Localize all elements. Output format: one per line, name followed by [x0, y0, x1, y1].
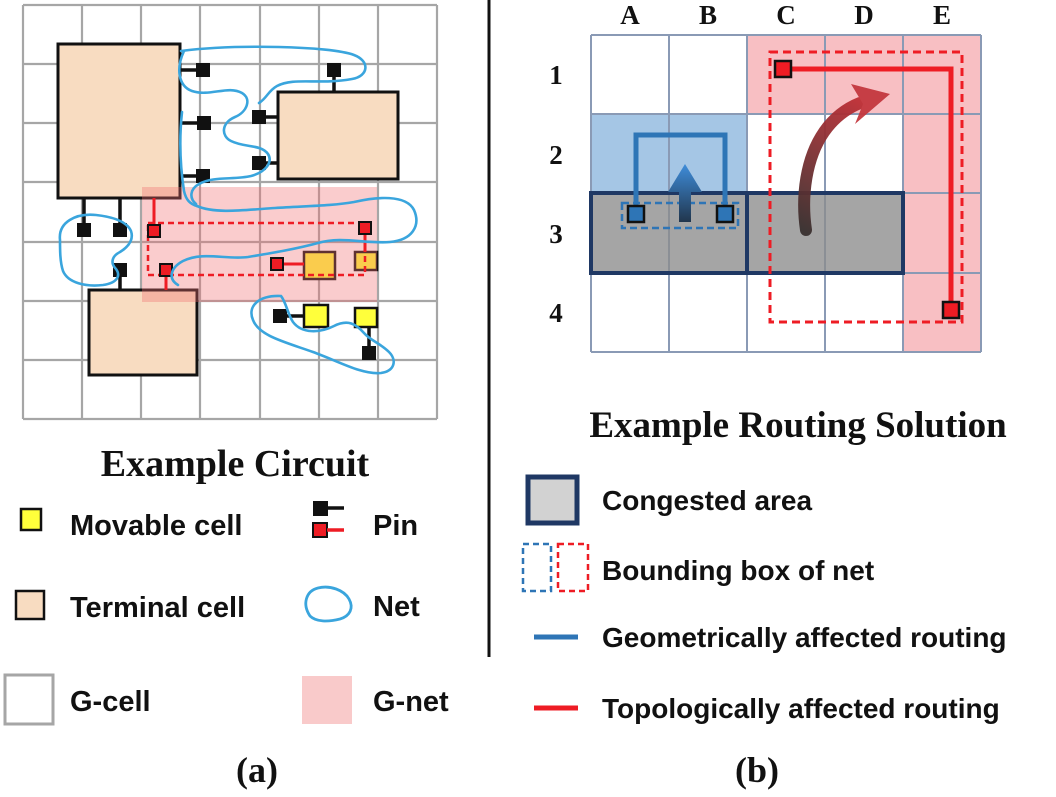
pin-red-routing [775, 61, 791, 77]
g-cell-swatch [5, 675, 53, 724]
congested-area-swatch [528, 477, 577, 523]
terminal-cell-swatch [16, 591, 44, 619]
shift-up-arrow-shaft [679, 190, 691, 222]
column-label-e: E [933, 0, 951, 30]
terminal-cell-top-right [278, 92, 398, 179]
pin-icon [313, 501, 344, 537]
pin-black [273, 309, 287, 323]
left-panel: Example Circuit (a) Movable cell Pin Ter… [5, 5, 449, 790]
pin-black [252, 110, 266, 124]
pin-red [271, 258, 283, 270]
pin-red-routing [943, 302, 959, 318]
right-legend: Congested area Bounding box of net Geome… [523, 477, 1007, 724]
legend-label-g-cell: G-cell [70, 686, 151, 718]
movable-cell [304, 305, 328, 327]
column-label-c: C [776, 0, 796, 30]
legend-label-topological: Topologically affected routing [602, 693, 1000, 724]
bounding-box-blue-swatch [523, 544, 551, 591]
row-label-1: 1 [549, 60, 563, 90]
pin-red [148, 225, 160, 237]
row-label-3: 3 [549, 219, 563, 249]
figure-canvas: Example Circuit (a) Movable cell Pin Ter… [0, 0, 1056, 797]
pin-blue [628, 206, 644, 222]
legend-label-geometric: Geometrically affected routing [602, 622, 1007, 653]
legend-label-terminal-cell: Terminal cell [70, 592, 245, 624]
figure-page: Example Circuit (a) Movable cell Pin Ter… [0, 0, 1056, 797]
pin-black-swatch [313, 501, 328, 516]
movable-cell [355, 308, 377, 327]
column-label-b: B [699, 0, 717, 30]
right-panel-caption: (b) [735, 750, 779, 790]
movable-cell-swatch [21, 509, 41, 530]
legend-label-net: Net [373, 591, 420, 623]
right-panel-title: Example Routing Solution [589, 405, 1007, 446]
legend-label-pin: Pin [373, 510, 418, 542]
column-label-d: D [854, 0, 874, 30]
bounding-box-red-swatch [558, 544, 588, 591]
terminal-cell-top-left [58, 44, 180, 198]
pin-red-swatch [313, 523, 327, 537]
row-label-2: 2 [549, 140, 563, 170]
row-label-4: 4 [549, 298, 563, 328]
net-blob-icon [306, 587, 351, 621]
legend-label-bounding-box: Bounding box of net [602, 555, 874, 586]
pin-blue [717, 206, 733, 222]
legend-label-movable-cell: Movable cell [70, 510, 242, 542]
pin-black [362, 346, 376, 360]
terminal-cell-bottom-left [89, 290, 197, 375]
column-label-a: A [620, 0, 640, 30]
pin-red [160, 264, 172, 276]
pin-red [359, 222, 371, 234]
legend-label-congested: Congested area [602, 485, 812, 516]
pin-black [77, 223, 91, 237]
pin-black [113, 263, 127, 277]
left-legend: Movable cell Pin Terminal cell Net G-cel… [5, 501, 449, 724]
pin-black [197, 116, 211, 130]
g-net-swatch [302, 676, 352, 724]
left-panel-caption: (a) [236, 750, 278, 790]
pin-black [327, 63, 341, 77]
right-panel: A B C D E 1 2 3 4 [523, 0, 1007, 790]
left-panel-title: Example Circuit [101, 443, 370, 485]
pin-black [196, 63, 210, 77]
pin-black [252, 156, 266, 170]
legend-label-g-net: G-net [373, 686, 449, 718]
